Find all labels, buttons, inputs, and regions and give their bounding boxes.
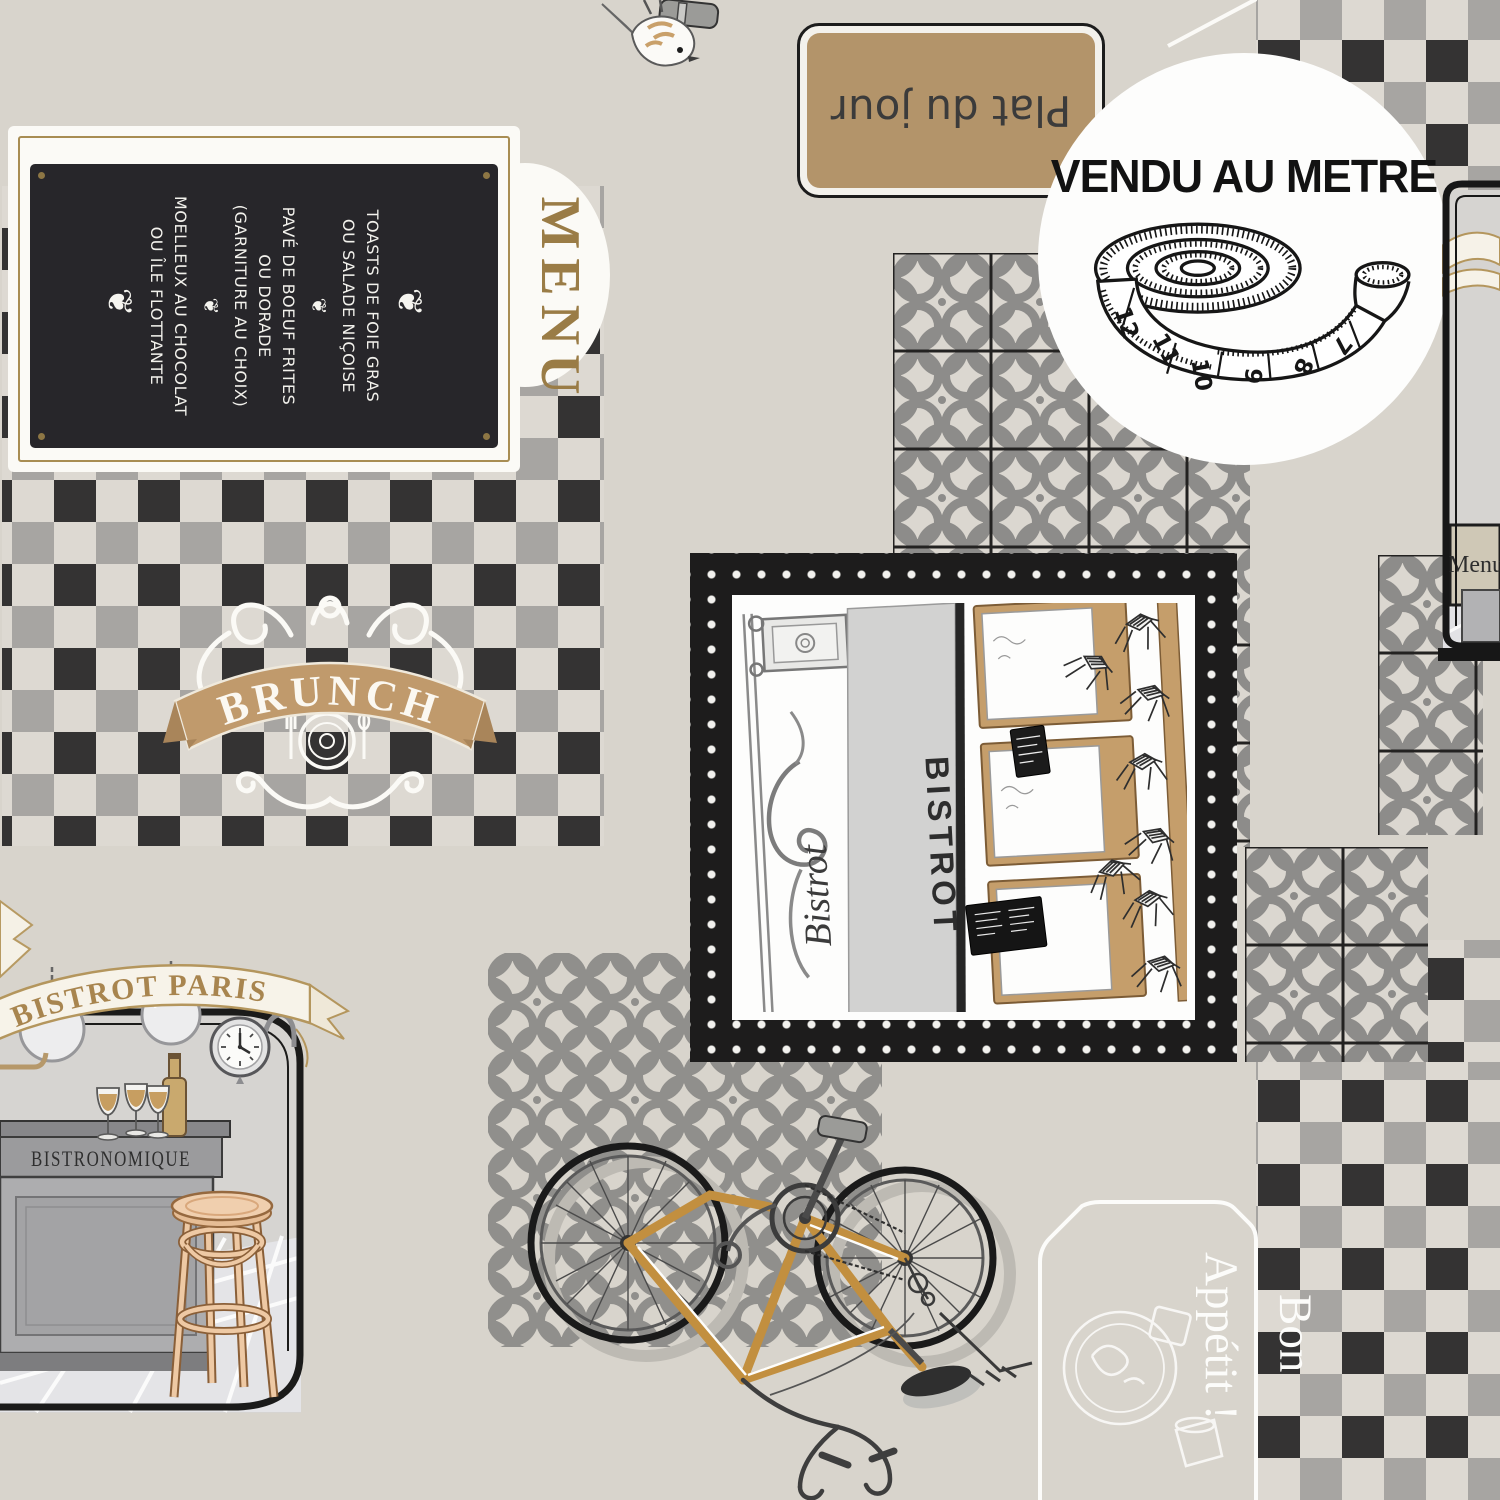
right-scene-bottom-bar: [1438, 648, 1500, 661]
menu-title: MENU: [515, 195, 605, 405]
vendu-au-metre-badge: VENDU AU METRE 12 11 10 9: [1038, 53, 1450, 465]
menu-ornament-top: ❦: [392, 288, 426, 325]
bistrot-paris-scene: BISTRONOMIQUE: [0, 945, 360, 1500]
menu-card: ❦ TOASTS DE FOIE GRAS OU SALADE NIÇOISE …: [8, 126, 520, 472]
bistrot-picture: Bistrot BISTROT: [732, 595, 1195, 1020]
menu-title-label: MENU: [528, 196, 592, 403]
bon-appetit-word2: Appétit !: [1195, 1252, 1247, 1420]
menu-line: OU SALADE NIÇOISE: [336, 210, 360, 403]
menu-ornament-bottom: ❦: [102, 288, 136, 325]
menu-tablet-large: [966, 896, 1048, 955]
vendu-au-metre-label: VENDU AU METRE: [1044, 149, 1444, 203]
gingham-field-bottom-right-upper: [1420, 940, 1500, 1062]
menu-course-1: TOASTS DE FOIE GRAS OU SALADE NIÇOISE: [336, 210, 384, 403]
bon-appetit-word1: Bon: [1269, 1294, 1321, 1372]
menu-line: OU DORADE: [252, 205, 276, 408]
menu-line: OU ÎLE FLOTTANTE: [144, 196, 168, 416]
tape-number: 10: [1185, 357, 1216, 393]
right-edge-scene: Menu: [1438, 170, 1500, 670]
menu-divider: ❦: [308, 298, 328, 315]
menu-line: (GARNITURE AU CHOIX): [228, 205, 252, 408]
bistrot-storefront-illustration: Bistrot BISTROT: [740, 603, 1187, 1012]
menu-chalkboard: ❦ TOASTS DE FOIE GRAS OU SALADE NIÇOISE …: [30, 164, 498, 448]
menu-line: PAVÉ DE BOEUF FRITES: [276, 205, 300, 408]
right-scene-counter: [1462, 590, 1500, 642]
bistrot-script-text: Bistrot: [793, 842, 840, 948]
menu-course-2: PAVÉ DE BOEUF FRITES OU DORADE (GARNITUR…: [228, 205, 300, 408]
brunch-emblem: BRUNCH: [163, 573, 497, 823]
fabric-pattern-photo: Plat du jour ❦ TOASTS DE FOIE GRAS OU SA…: [0, 0, 1500, 1500]
brunch-banner: BRUNCH: [163, 663, 497, 749]
bicycle-illustration: [470, 1075, 1090, 1500]
brunch-plate-icon: [287, 713, 369, 768]
handlebars: [743, 1380, 894, 1498]
measuring-tape-icon: 12 11 10 9 8 7: [1068, 211, 1420, 399]
counter-label: BISTRONOMIQUE: [31, 1146, 191, 1171]
bar-counter: BISTRONOMIQUE: [0, 1121, 230, 1371]
tile-grid-right: [1245, 847, 1428, 1062]
menu-rotated-text: ❦ TOASTS DE FOIE GRAS OU SALADE NIÇOISE …: [30, 164, 498, 448]
bicycle-shadow: [549, 1162, 1010, 1362]
menu-line: MOELLEUX AU CHOCOLAT: [168, 196, 192, 416]
bird-illustration: [596, 0, 746, 90]
menu-line: TOASTS DE FOIE GRAS: [360, 210, 384, 403]
tape-number: 9: [1238, 366, 1266, 385]
menu-divider: ❦: [200, 298, 220, 315]
menu-tablet-small: [1010, 725, 1050, 777]
pattern-repeat-line: [1167, 0, 1257, 48]
menu-course-3: MOELLEUX AU CHOCOLAT OU ÎLE FLOTTANTE: [144, 196, 192, 416]
bistrot-picture-frame: Bistrot BISTROT: [690, 553, 1237, 1062]
